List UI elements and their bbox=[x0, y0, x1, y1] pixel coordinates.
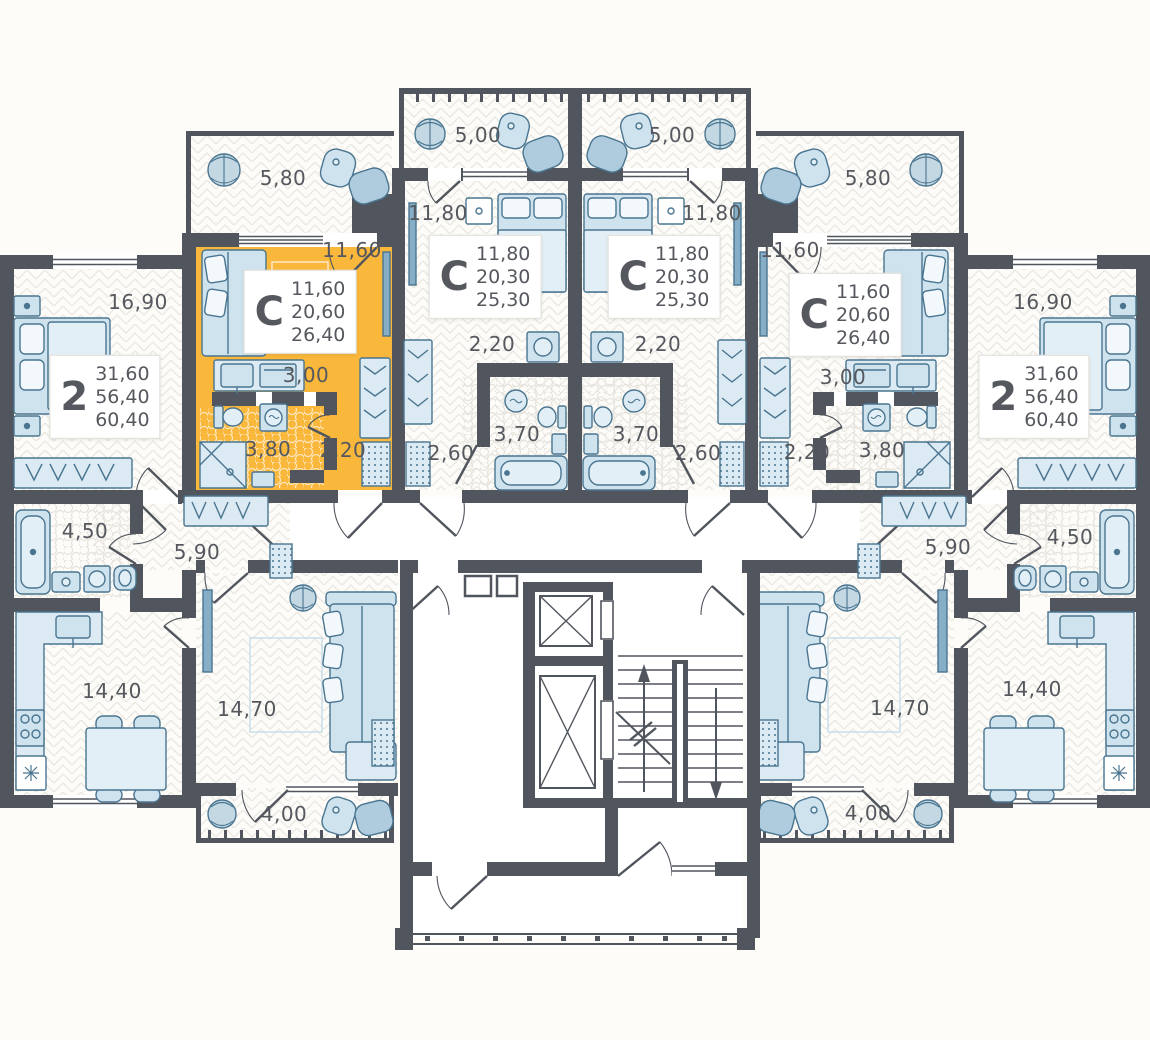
apartment-type-label: С bbox=[800, 297, 829, 333]
tv-icon bbox=[203, 590, 212, 672]
center-tv-icon bbox=[409, 203, 416, 285]
apartment-area-value: 11,80 bbox=[476, 243, 530, 266]
apartment-card-studio-highlighted[interactable]: С11,6020,6026,40 bbox=[244, 270, 357, 354]
drawers-icon bbox=[372, 720, 394, 766]
center-drawers-icon bbox=[406, 442, 430, 486]
bathtub-icon bbox=[16, 510, 50, 594]
balcony-plant-icon bbox=[208, 800, 236, 828]
studio-wardrobe-icon bbox=[360, 358, 390, 438]
center-bath-sink-icon bbox=[552, 434, 566, 454]
apartment-type-label: 2 bbox=[60, 379, 88, 415]
apartment-area-value: 60,40 bbox=[95, 408, 149, 431]
floor-plan-page: 5,805,005,005,8011,6011,8011,8011,6016,9… bbox=[0, 0, 1150, 1040]
apartment-type-label: 2 bbox=[989, 379, 1017, 415]
hall-wardrobe-icon bbox=[184, 496, 268, 526]
center-balcony-plant-icon bbox=[415, 119, 445, 149]
apartment-area-value: 31,60 bbox=[1024, 363, 1078, 386]
apartment-area-value: 20,60 bbox=[836, 304, 890, 327]
apartment-area-values: 11,8020,3025,30 bbox=[476, 243, 530, 311]
apartment-card-right-2room[interactable]: 231,6056,4060,40 bbox=[978, 355, 1089, 439]
studio-tv-icon bbox=[383, 252, 390, 336]
studio-balcony-plant-icon bbox=[208, 154, 240, 186]
apartment-type-label: С bbox=[619, 259, 648, 295]
studio-toilet-icon bbox=[214, 406, 243, 428]
apartment-area-value: 11,80 bbox=[655, 243, 709, 266]
sink-icon bbox=[52, 572, 80, 592]
stove-icon bbox=[16, 710, 44, 746]
apartment-area-values: 31,6056,4060,40 bbox=[1024, 363, 1078, 431]
washing-machine-icon bbox=[84, 566, 110, 592]
apartment-area-value: 25,30 bbox=[476, 288, 530, 311]
studio-small-sink-icon bbox=[252, 472, 274, 487]
apartment-area-value: 56,40 bbox=[95, 386, 149, 409]
apartment-card-studio-center-left[interactable]: С11,8020,3025,30 bbox=[429, 235, 542, 319]
studio-washer-icon bbox=[260, 404, 287, 431]
apartment-card-left-2room[interactable]: 231,6056,4060,40 bbox=[49, 355, 160, 439]
apartment-area-value: 26,40 bbox=[836, 326, 890, 349]
vent-shaft-icon bbox=[465, 576, 517, 596]
fridge-icon bbox=[16, 756, 46, 790]
center-nightstand-icon bbox=[466, 198, 492, 224]
studio-shower-icon bbox=[200, 442, 246, 488]
center-wardrobe-icon bbox=[404, 340, 432, 424]
apartment-area-values: 11,6020,6026,40 bbox=[291, 278, 345, 346]
apartment-area-value: 11,60 bbox=[291, 278, 345, 301]
center-bathtub-icon bbox=[495, 456, 567, 490]
studio-kitchen-icon bbox=[214, 360, 304, 394]
apartment-card-studio-center-right[interactable]: С11,8020,3025,30 bbox=[608, 235, 721, 319]
studio-drawers-icon bbox=[362, 442, 390, 486]
apartment-area-value: 20,30 bbox=[476, 266, 530, 289]
center-toilet-icon bbox=[538, 406, 566, 428]
toilet-icon bbox=[114, 566, 136, 590]
apartment-area-value: 26,40 bbox=[291, 323, 345, 346]
apartment-area-value: 56,40 bbox=[1024, 386, 1078, 409]
center-bath-washer-icon bbox=[505, 390, 527, 412]
apartment-area-value: 20,60 bbox=[291, 301, 345, 324]
apartment-area-value: 11,60 bbox=[836, 281, 890, 304]
plant-icon bbox=[290, 585, 316, 611]
apartment-area-values: 11,6020,6026,40 bbox=[836, 281, 890, 349]
apartment-area-value: 31,60 bbox=[95, 363, 149, 386]
apartment-area-value: 20,30 bbox=[655, 266, 709, 289]
wardrobe-icon bbox=[14, 458, 132, 488]
apartment-area-value: 60,40 bbox=[1024, 408, 1078, 431]
apartment-area-values: 11,8020,3025,30 bbox=[655, 243, 709, 311]
floor-plan-drawing bbox=[0, 0, 1150, 1040]
center-washer-icon bbox=[527, 332, 559, 362]
apartment-type-label: С bbox=[440, 259, 469, 295]
dining-table-icon bbox=[86, 716, 166, 802]
apartment-card-studio-right[interactable]: С11,6020,6026,40 bbox=[789, 273, 902, 357]
apartment-area-value: 25,30 bbox=[655, 288, 709, 311]
apartment-type-label: С bbox=[255, 294, 284, 330]
corridor-drawers-icon bbox=[270, 544, 292, 578]
apartment-area-values: 31,6056,4060,40 bbox=[95, 363, 149, 431]
